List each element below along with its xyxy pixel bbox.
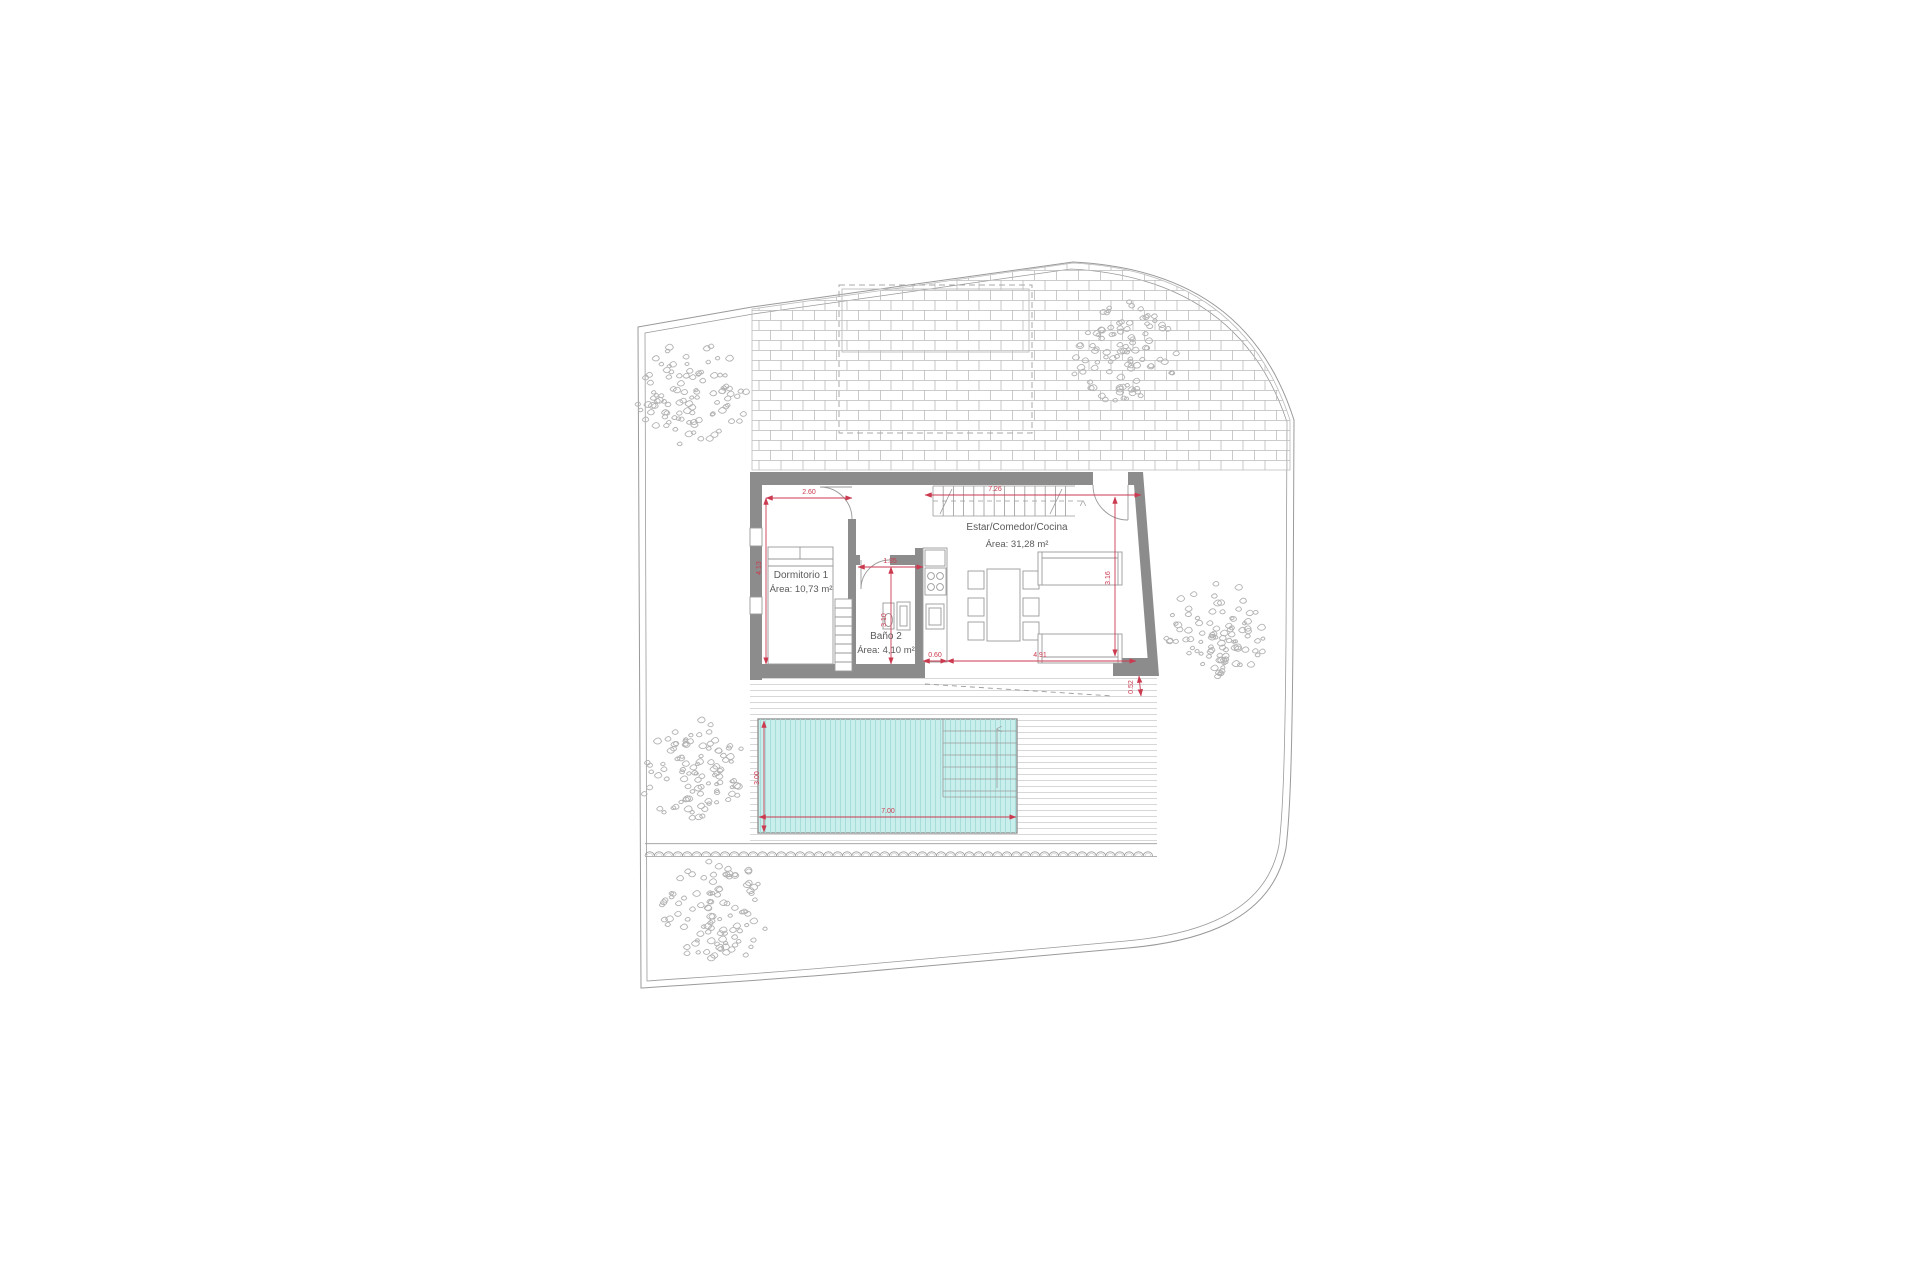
dim-bedroom-width-label: 2.60 [802,489,816,496]
dining-table [987,569,1020,641]
dim-pool-length-label: 7.00 [881,808,895,815]
dim-bedroom-depth-label: 4.13 [756,561,763,575]
sofas [1038,552,1122,663]
cooktop [925,568,946,595]
dining-set [968,569,1039,641]
dim-pool-width-label: 3.00 [754,771,761,785]
label-bano-area: Área: 4,10 m² [857,645,915,656]
brick-paving [752,263,1290,470]
sofa-bottom [1038,634,1122,663]
dim-living-span-label: 4.91 [1033,652,1047,659]
interior-walls [848,519,925,664]
label-bano-name: Baño 2 [870,631,902,642]
wall-top-left [750,472,1093,485]
dim-bath-depth-label: 3.10 [881,613,888,627]
fence-scallops [645,852,1153,856]
dim-living-width: 7.26 [925,486,1141,495]
dim-counter-gap-label: 0.60 [928,652,942,659]
label-estar-area: Área: 31,28 m² [986,539,1049,550]
kitchen [923,548,947,662]
entry-door [1093,485,1128,520]
wall-right-slanted [1133,472,1159,676]
label-dormitorio-name: Dormitorio 1 [774,570,829,581]
tree-canopy-5 [659,859,767,961]
bedroom-door [820,487,852,519]
floor-plan-sheet: 2.60 4.13 1.35 3.10 7.26 3.16 0.60 4.91 [0,0,1920,1280]
staircase [933,486,1083,516]
floor-plan-canvas: 2.60 4.13 1.35 3.10 7.26 3.16 0.60 4.91 [0,0,1920,1280]
bed [768,547,833,664]
tree-canopy-3 [641,717,743,820]
pool [758,719,1017,833]
dim-bath-width-label: 1.35 [883,558,897,565]
scallop-fence [645,844,1157,857]
dim-deck-gap-label: 0.52 [1128,680,1135,694]
dim-living-depth-label: 3.16 [1105,571,1112,585]
dim-living-width-label: 7.26 [988,486,1002,493]
wall-left [750,472,762,680]
tree-canopy-4 [1164,581,1266,678]
tree-canopy-1 [635,344,750,446]
label-dormitorio-area: Área: 10,73 m² [770,584,833,595]
fridge [925,550,945,566]
window-1 [750,528,762,546]
bedroom-furniture [768,547,852,671]
wall-bath-top-a [848,555,860,565]
label-estar-name: Estar/Comedor/Cocina [966,522,1068,533]
window-2 [750,597,762,614]
